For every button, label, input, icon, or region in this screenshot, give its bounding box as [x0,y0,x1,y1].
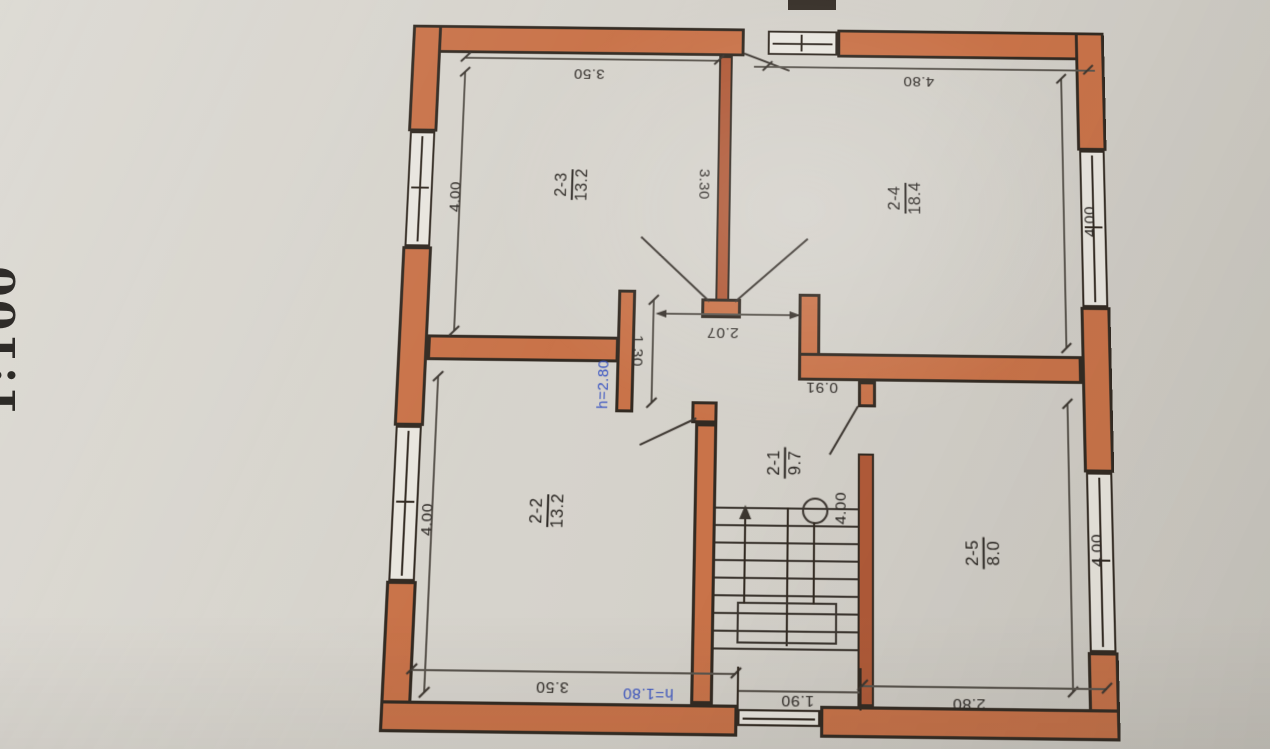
dim-label-right-lower: 4.00 [1085,526,1110,574]
stair-start-circle [802,497,829,524]
dim-line-bottom-right [862,685,1107,690]
room-id: 2-5 [963,537,985,570]
dim-label-left-lower: 4.00 [414,496,440,543]
floor-plan-photo: 1:100 [0,0,1270,749]
dim-line-right-lower [1066,404,1074,692]
wall-right-upper [1075,32,1107,151]
stair-landing-rail [736,602,837,645]
wall-left-upper [408,25,442,132]
room-area: 9.7 [787,450,806,475]
wall-top-right [837,30,1104,61]
dim-line-top-left [466,57,719,62]
dim-label-bottom-right: 2.80 [928,690,1011,717]
dim-label-bottom-left: 3.50 [511,673,594,699]
wall-between-2-3-and-2-4 [715,56,733,301]
room-area: 18.4 [907,182,925,215]
door-swing-top [744,53,790,72]
dim-line-right-upper [1060,79,1067,348]
height-note-opening: h=1.80 [606,681,689,707]
room-area: 8.0 [985,540,1004,565]
dim-label-stair: 4.00 [829,485,853,532]
dim-label-bottom-stair: 1.90 [766,687,828,713]
dim-label-top-right: 4.80 [880,69,958,92]
dim-label-right-upper: 4.00 [1078,199,1103,244]
wall-top-left [412,25,745,57]
window-top [768,31,838,56]
room-label-2-5: 2-58.0 [951,520,1017,587]
room-label-2-1: 2-19.7 [753,430,818,496]
door-pier-2-2 [691,401,717,423]
room-label-2-2: 2-213.2 [514,478,581,544]
dim-label-hall-stub: 1.30 [624,328,649,374]
door-swing-2-5 [829,406,859,455]
window-left-upper [404,131,435,246]
photo-artifact [788,0,836,10]
door-swing-2-3 [641,236,710,302]
room-id: 2-1 [765,447,787,479]
dim-label-door-step: 0.91 [792,374,852,399]
room-area: 13.2 [549,493,569,528]
door-swing-2-4 [734,238,808,302]
door-swing-2-2 [639,417,696,445]
room-id: 2-3 [552,169,574,199]
dim-line-hall-stub [650,300,654,403]
room-label-2-3: 2-313.2 [540,154,605,216]
wall-right-middle [1080,307,1114,473]
room-id: 2-4 [886,183,907,213]
wall-left-middle [394,246,432,426]
room-area: 13.2 [573,168,592,201]
dim-label-top-left: 3.50 [550,62,628,85]
stair-direction-arrow [739,505,751,519]
dim-label-inner-wall: 3.30 [691,162,715,206]
room-id: 2-2 [527,494,550,526]
room-label-2-4: 2-418.4 [874,167,937,229]
wall-between-2-3-and-2-2 [427,334,619,362]
wall-stub-hall-right [798,294,820,357]
door-pier-2-5 [858,381,876,407]
height-note-room: h=2.80 [590,344,616,424]
dim-label-hall-opening: 2.07 [693,320,753,344]
floor-plan: 3.50 4.80 4.00 4.00 4.00 4.00 3.30 1.30 … [0,7,1270,749]
dim-label-left-upper: 4.00 [443,174,468,218]
stair-wall-left [690,423,717,704]
